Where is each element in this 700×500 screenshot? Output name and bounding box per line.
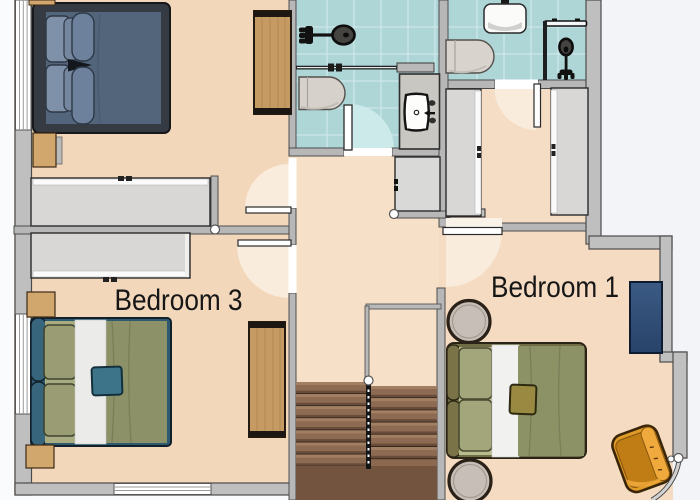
svg-text:Bedroom 3: Bedroom 3: [115, 284, 243, 317]
svg-text:Bedroom 1: Bedroom 1: [491, 271, 619, 304]
